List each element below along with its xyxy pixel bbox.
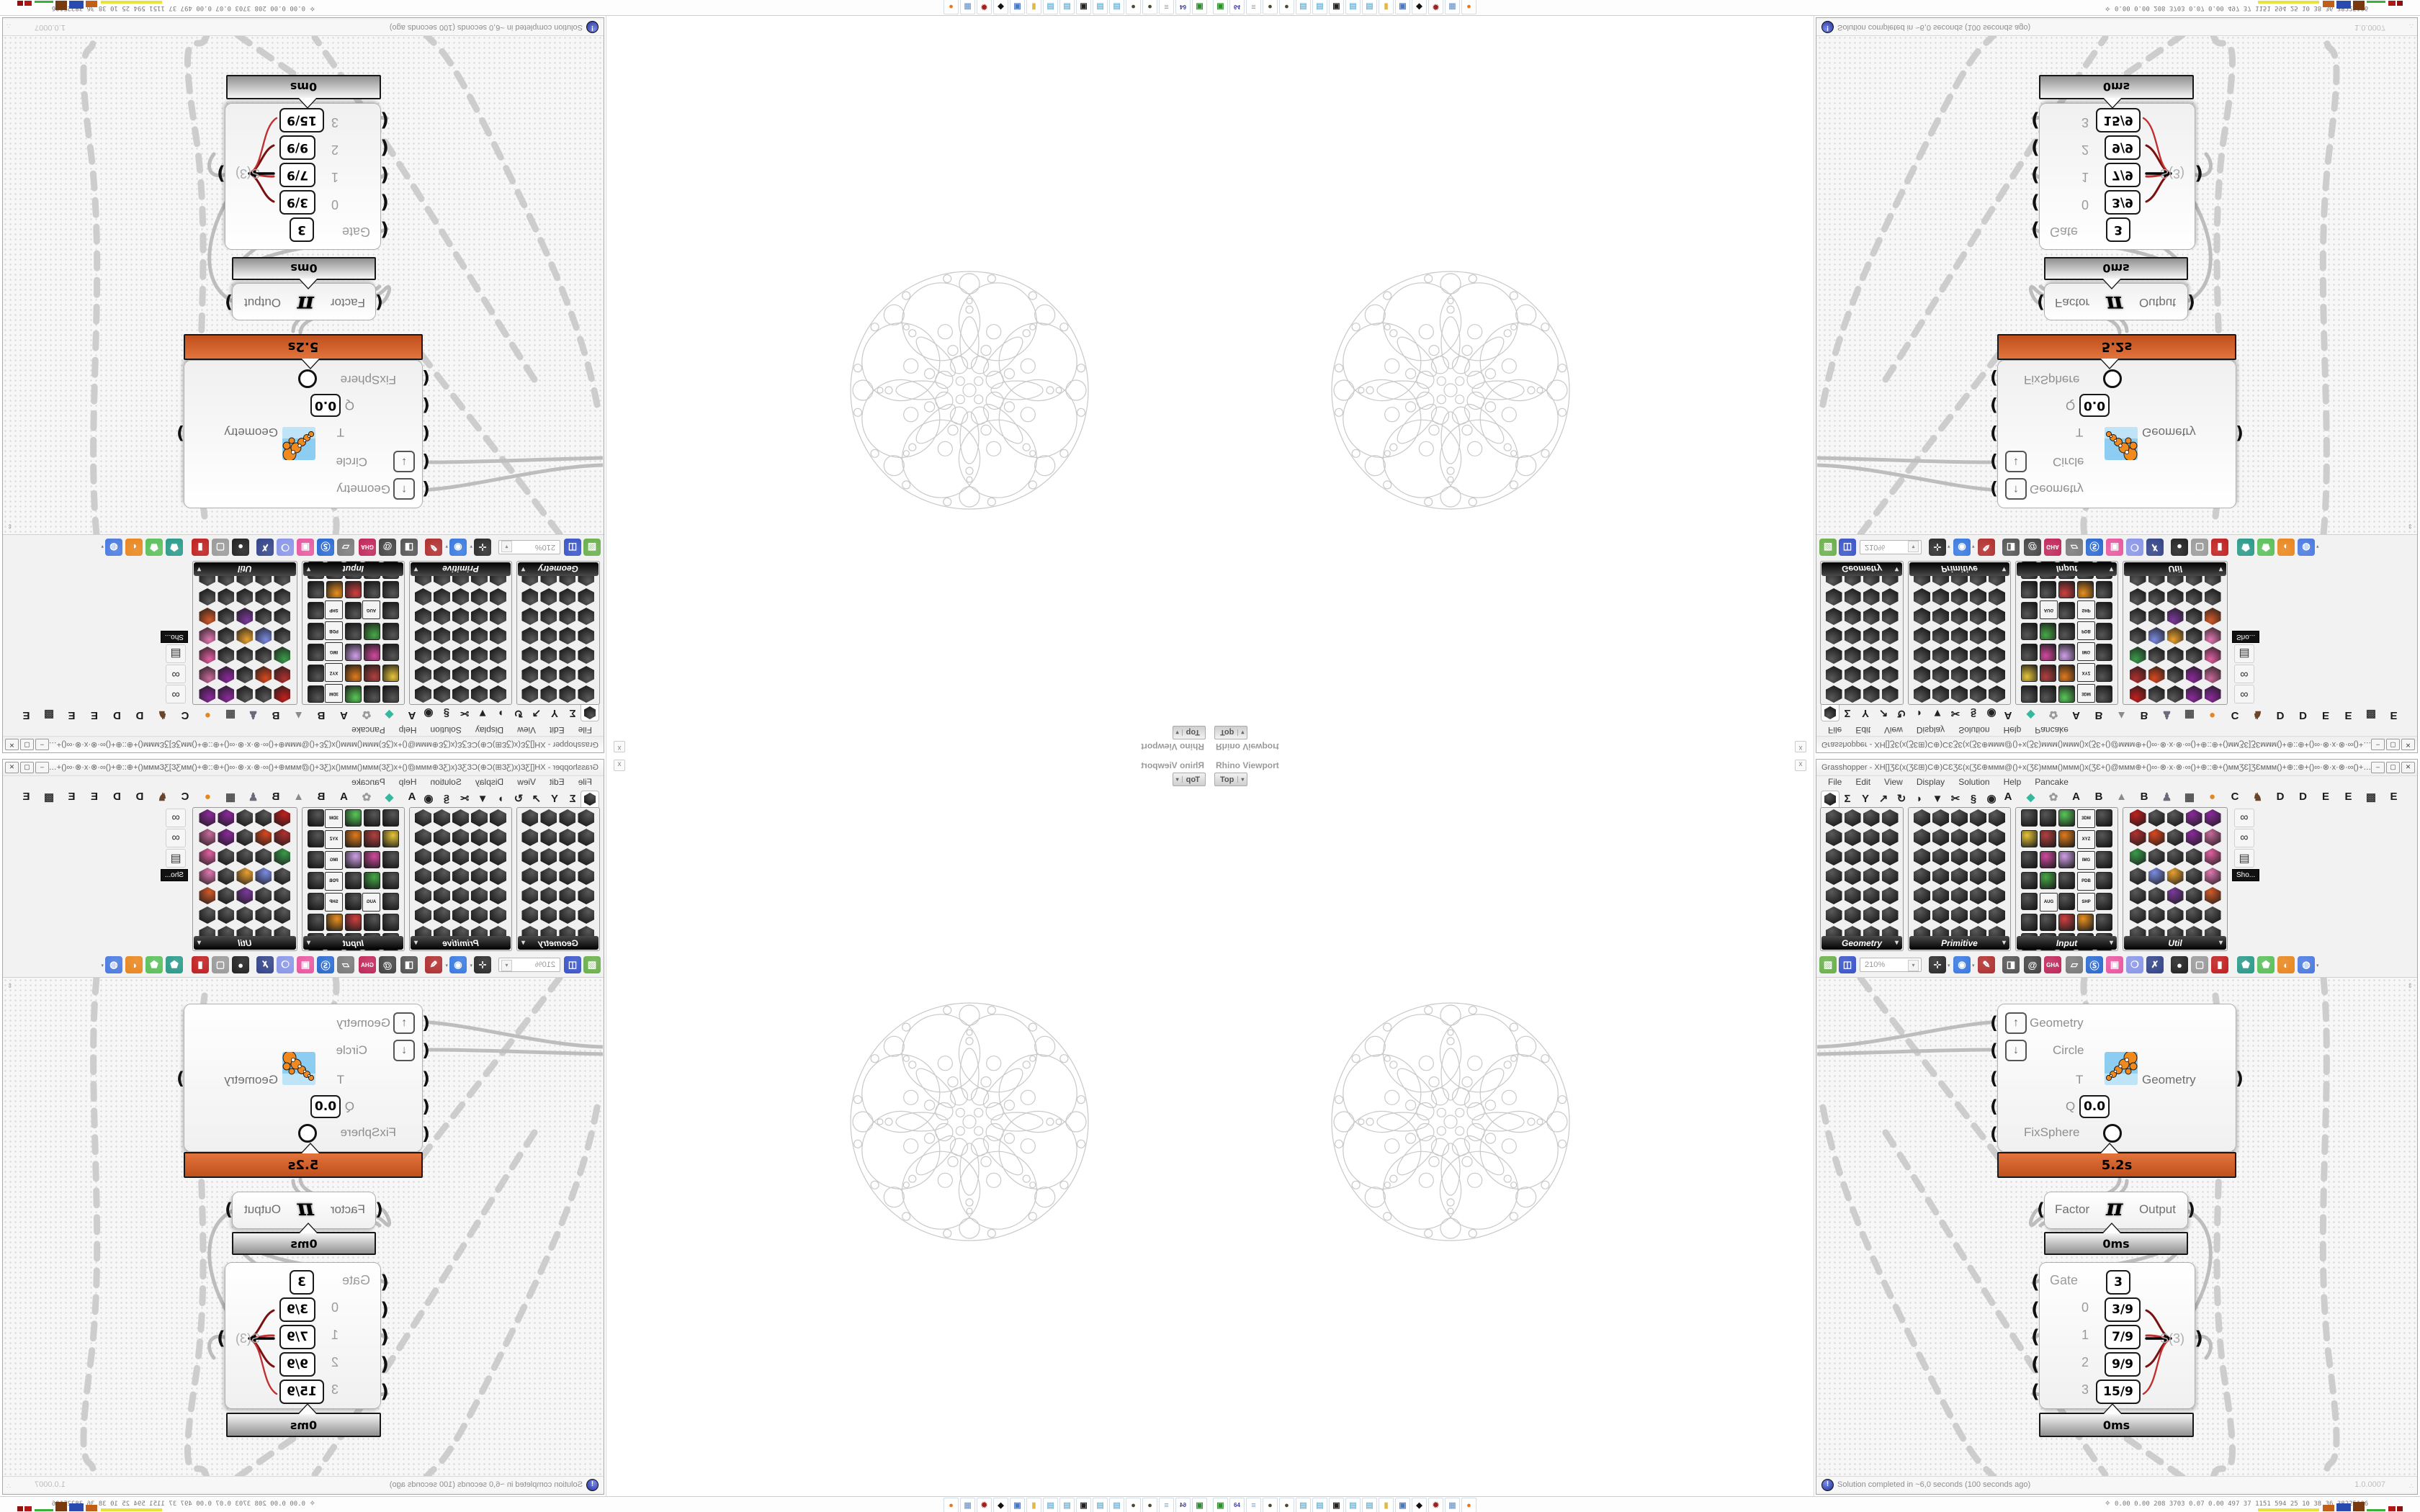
component-icon[interactable] (2130, 809, 2146, 827)
board-icon[interactable]: ▤ (166, 849, 186, 868)
chevron-down-icon[interactable]: ▾ (307, 939, 310, 947)
app-folder-icon[interactable]: ▮ (1026, 0, 1041, 14)
preview-eye-icon[interactable]: ◉ (1953, 956, 1971, 973)
component-icon[interactable] (2040, 685, 2056, 703)
component-icon[interactable] (2021, 893, 2038, 910)
component-icon[interactable] (1914, 685, 1930, 703)
app-note1-icon[interactable]: ▤ (1109, 1498, 1124, 1512)
package-icon[interactable]: ▣ (2106, 539, 2123, 556)
component-icon[interactable] (1882, 647, 1899, 664)
menu-item-display[interactable]: Display (1917, 725, 1945, 735)
component-icon[interactable] (1951, 647, 1968, 664)
chevron-down-icon[interactable]: ▾ (470, 544, 472, 549)
component-icon[interactable] (522, 685, 539, 703)
component-icon[interactable] (274, 666, 291, 683)
component-icon[interactable] (2096, 581, 2112, 598)
tab-sets[interactable]: Y (546, 706, 563, 721)
glasses-icon[interactable]: ∞ (166, 685, 186, 703)
component-icon[interactable] (345, 665, 362, 682)
menu-item-help[interactable]: Help (399, 725, 417, 735)
component-icon[interactable] (434, 829, 450, 846)
component-icon[interactable] (560, 588, 576, 606)
gate-value-box[interactable]: 7/9 (2105, 163, 2141, 187)
tab-curve[interactable]: ↻ (1893, 706, 1910, 721)
input-connector[interactable]: ( (2031, 1354, 2040, 1375)
component-icon[interactable] (452, 829, 469, 846)
tab-surface[interactable]: ◗ (492, 791, 509, 806)
component-icon[interactable] (434, 627, 450, 644)
finder-icon[interactable]: Ⓢ (2086, 539, 2103, 556)
glasses2-icon[interactable]: ∞ (166, 665, 186, 683)
app-orb1-icon[interactable]: ● (1263, 0, 1278, 14)
chevron-down-icon[interactable]: ▾ (197, 939, 201, 947)
component-icon[interactable] (2130, 647, 2146, 664)
component-icon[interactable] (1863, 647, 1880, 664)
component-icon[interactable] (308, 685, 324, 703)
component-icon[interactable] (1970, 647, 1986, 664)
component-icon[interactable] (1951, 906, 1968, 924)
component-icon[interactable] (452, 627, 469, 644)
component-icon[interactable] (308, 893, 324, 910)
component-icon[interactable] (2167, 588, 2184, 606)
wire-display-icon[interactable]: ✗ (2146, 956, 2164, 973)
component-icon[interactable]: IMG (325, 642, 343, 661)
arrow-down-icon[interactable]: ↓ (393, 451, 415, 472)
chevron-down-icon[interactable]: ▾ (307, 565, 310, 573)
gate-value-box[interactable]: 15/9 (2096, 1380, 2141, 1404)
app-bw-icon[interactable]: ◆ (993, 1498, 1008, 1512)
component-icon[interactable] (2186, 809, 2202, 827)
rhino-viewport[interactable]: Rhino Viewport Top ▾ x (606, 756, 1210, 1496)
component-icon[interactable] (1914, 868, 1930, 885)
component-icon[interactable] (256, 647, 272, 664)
menu-item-solution[interactable]: Solution (430, 725, 461, 735)
output-connector[interactable]: ) (2195, 1328, 2203, 1349)
plugin-tab[interactable]: ● (198, 706, 218, 721)
component-icon[interactable] (1826, 627, 1842, 644)
app-bw-icon[interactable]: ◆ (993, 0, 1008, 14)
gate-value-box[interactable]: 7/9 (2105, 1325, 2141, 1349)
tab-transform[interactable]: § (438, 791, 455, 806)
output-connector[interactable]: ) (2195, 163, 2203, 184)
component-icon[interactable] (2205, 829, 2221, 846)
component-icon[interactable] (541, 829, 557, 846)
component-icon[interactable] (200, 608, 216, 625)
plugin-tab[interactable]: A (334, 706, 354, 721)
chevron-down-icon[interactable]: ▾ (1237, 729, 1244, 736)
output-connector[interactable]: ) (217, 1328, 225, 1349)
component-icon[interactable] (2130, 887, 2146, 904)
component-icon[interactable]: 3DM (325, 684, 343, 703)
palette-footer-geometry[interactable]: Geometry▾ (518, 936, 599, 950)
grasshopper-titlebar[interactable]: Grasshopper - XH[]ƷƐ(x(ƷƐ⊞)C⊕)CƐƷƐ(x(ƷƐ⊕… (3, 736, 604, 752)
menu-item-display[interactable]: Display (475, 777, 503, 787)
plugin-tab[interactable]: B (2089, 706, 2109, 721)
component-icon[interactable] (345, 851, 362, 868)
chevron-down-icon[interactable]: ▾ (1908, 541, 1919, 552)
exposure-icon[interactable]: ◨ (400, 956, 418, 973)
bake-teal-icon[interactable]: ⬟ (166, 956, 183, 973)
cluster-red-icon[interactable]: ▮ (2211, 539, 2228, 556)
component-icon[interactable] (2167, 906, 2184, 924)
board-icon[interactable]: ▤ (166, 644, 186, 663)
input-connector[interactable]: ( (422, 1013, 430, 1033)
input-connector[interactable]: ( (1990, 1124, 1998, 1144)
palette-footer-util[interactable]: Util▾ (2124, 936, 2226, 950)
menu-item-file[interactable]: File (1828, 777, 1842, 787)
component-icon[interactable] (1989, 887, 2005, 904)
component-icon[interactable] (364, 872, 380, 889)
input-connector[interactable]: ( (2031, 219, 2040, 240)
gate-value-box[interactable]: 15/9 (2096, 108, 2141, 132)
gate-value-box[interactable]: 3/9 (279, 190, 315, 215)
tab-surface[interactable]: ◗ (1911, 706, 1928, 721)
component-icon[interactable] (2167, 848, 2184, 865)
plugin-tab[interactable]: ▲ (2112, 791, 2132, 806)
viewport-tab-top[interactable]: Top ▾ (1214, 726, 1247, 739)
grasshopper-canvas[interactable]: ( ( ( ( ( ) ↑ ↓ Geometry Circle T Q FixS… (1817, 35, 2417, 534)
tab-params[interactable] (581, 791, 599, 807)
output-connector[interactable]: ) (2187, 1200, 2195, 1220)
component-icon[interactable] (415, 809, 431, 827)
plugin-tab[interactable]: ✿ (2043, 706, 2063, 721)
bake-green-icon[interactable]: ⬟ (145, 956, 163, 973)
balloon-icon[interactable]: ❍ (277, 539, 294, 556)
component-icon[interactable] (1989, 647, 2005, 664)
chevron-down-icon[interactable]: ▾ (1972, 963, 1975, 968)
plugin-tab[interactable]: E (84, 791, 104, 806)
component-icon[interactable] (345, 623, 362, 640)
app-monitor-icon[interactable]: ▣ (1010, 0, 1025, 14)
component-icon[interactable] (308, 665, 324, 682)
palette-footer-primitive[interactable]: Primitive▾ (1909, 936, 2009, 950)
app-seal-icon[interactable]: ✹ (1428, 1498, 1443, 1512)
preview-eye-icon[interactable]: ◉ (449, 539, 467, 556)
arrow-up-icon[interactable]: ↑ (393, 1012, 415, 1034)
viewport-tab-top[interactable]: Top ▾ (1173, 773, 1206, 786)
component-icon[interactable] (578, 647, 595, 664)
component-icon[interactable] (200, 685, 216, 703)
tab-maths[interactable]: Σ (1839, 791, 1856, 806)
component-icon[interactable] (560, 608, 576, 625)
app-firefox-icon[interactable]: ● (944, 1498, 959, 1512)
component-icon[interactable] (1863, 608, 1880, 625)
plugin-tab[interactable]: ▦ (2179, 791, 2200, 806)
plugin-tab[interactable]: A (1998, 706, 2018, 721)
chevron-down-icon[interactable]: ▾ (1176, 729, 1183, 736)
component-icon[interactable] (1882, 666, 1899, 683)
pi-component[interactable]: ( ) Factor π Output (2044, 283, 2188, 320)
input-connector[interactable]: ( (422, 1068, 430, 1089)
chevron-down-icon[interactable]: ▾ (1972, 544, 1975, 549)
component-icon[interactable] (237, 906, 254, 924)
minimize-button[interactable]: – (35, 739, 49, 750)
component-icon[interactable] (471, 685, 488, 703)
component-icon[interactable] (274, 906, 291, 924)
component-icon[interactable] (578, 588, 595, 606)
plugin-tab[interactable]: E (2339, 706, 2359, 721)
named-view-icon[interactable]: ▱ (337, 956, 354, 973)
component-icon[interactable] (364, 581, 380, 598)
component-icon[interactable] (1932, 666, 1949, 683)
component-icon[interactable] (364, 644, 380, 661)
component-icon[interactable] (1863, 848, 1880, 865)
component-icon[interactable] (560, 647, 576, 664)
component-icon[interactable] (578, 685, 595, 703)
component-icon[interactable] (522, 608, 539, 625)
chevron-down-icon[interactable]: ▾ (2002, 565, 2006, 573)
gate-value-box[interactable]: 15/9 (279, 108, 324, 132)
chevron-down-icon[interactable]: ▾ (1176, 776, 1183, 783)
component-icon[interactable] (382, 872, 399, 889)
preview-blue-icon[interactable]: ◍ (2298, 956, 2315, 973)
tab-transform[interactable]: § (1965, 791, 1982, 806)
menu-item-display[interactable]: Display (475, 725, 503, 735)
component-icon[interactable] (274, 848, 291, 865)
component-icon[interactable] (1882, 868, 1899, 885)
tab-sets[interactable]: Y (546, 791, 563, 806)
component-icon[interactable] (471, 848, 488, 865)
input-connector[interactable]: ( (375, 1200, 383, 1220)
app-firefox-icon[interactable]: ● (1461, 1498, 1476, 1512)
menu-item-pancake[interactable]: Pancake (351, 777, 385, 787)
component-icon[interactable] (274, 608, 291, 625)
component-icon[interactable] (1970, 887, 1986, 904)
wire-display-icon[interactable]: ✗ (256, 956, 274, 973)
component-icon[interactable] (2186, 647, 2202, 664)
chevron-down-icon[interactable]: ▾ (1948, 544, 1950, 549)
mail-icon[interactable]: @ (379, 956, 396, 973)
app-floppy-icon[interactable]: 64 (1229, 1498, 1245, 1512)
component-icon[interactable] (1914, 829, 1930, 846)
save-file-icon[interactable]: ◫ (1839, 539, 1856, 556)
input-connector[interactable]: ( (1990, 1040, 1998, 1061)
component-icon[interactable] (1989, 627, 2005, 644)
wire-display-icon[interactable]: ✗ (256, 539, 274, 556)
app-note2-icon[interactable]: ▤ (1312, 1498, 1327, 1512)
component-icon[interactable] (2021, 685, 2038, 703)
chevron-down-icon[interactable]: ▾ (101, 544, 104, 549)
cluster-red-icon[interactable]: ▮ (192, 539, 209, 556)
chevron-down-icon[interactable]: ▾ (2316, 963, 2319, 968)
grasshopper-canvas[interactable]: ( ( ( ( ( ) ↑ ↓ Geometry Circle T Q FixS… (3, 35, 603, 534)
glasses2-icon[interactable]: ∞ (2234, 665, 2254, 683)
component-icon[interactable] (237, 647, 254, 664)
component-icon[interactable] (1970, 848, 1986, 865)
app-folder-icon[interactable]: ▮ (1379, 0, 1394, 14)
component-icon[interactable] (2186, 608, 2202, 625)
component-icon[interactable] (364, 851, 380, 868)
tab-maths[interactable]: Σ (1839, 706, 1856, 721)
component-icon[interactable] (364, 623, 380, 640)
chevron-down-icon[interactable]: ▾ (1237, 776, 1244, 783)
component-icon[interactable] (2021, 644, 2038, 661)
app-note1-icon[interactable]: ▤ (1296, 0, 1311, 14)
zoom-level-combobox[interactable]: 210% ▾ (498, 540, 560, 554)
plugin-tab[interactable]: D (2293, 706, 2313, 721)
component-icon[interactable] (490, 829, 506, 846)
plugin-tab[interactable]: ◆ (2021, 791, 2041, 806)
component-icon[interactable] (434, 887, 450, 904)
component-icon[interactable] (2096, 602, 2112, 619)
fixsphere-component[interactable]: ( ( ( ( ( ) ↑ ↓ Geometry Circle T Q FixS… (1997, 1004, 2236, 1152)
component-icon[interactable] (434, 608, 450, 625)
component-icon[interactable] (434, 647, 450, 664)
component-icon[interactable] (560, 906, 576, 924)
gha-icon[interactable]: GHA (359, 539, 376, 556)
app-device-icon[interactable]: ▣ (1213, 0, 1228, 14)
component-icon[interactable] (200, 829, 216, 846)
component-icon[interactable] (2040, 644, 2056, 661)
component-icon[interactable] (1914, 809, 1930, 827)
component-icon[interactable] (2058, 851, 2075, 868)
component-icon[interactable] (256, 906, 272, 924)
component-icon[interactable] (2130, 627, 2146, 644)
gha-icon[interactable]: GHA (2044, 956, 2061, 973)
q-value-box[interactable]: 0.0 (310, 394, 341, 417)
component-icon[interactable] (2148, 608, 2165, 625)
component-icon[interactable] (345, 893, 362, 910)
component-icon[interactable] (560, 829, 576, 846)
component-icon[interactable] (2186, 887, 2202, 904)
menu-item-view[interactable]: View (1884, 725, 1903, 735)
component-icon[interactable] (541, 906, 557, 924)
app-scroll-icon[interactable]: ≡ (1159, 0, 1174, 14)
plugin-tab[interactable]: ♞ (153, 706, 173, 721)
app-note3-icon[interactable]: ▤ (1059, 1498, 1075, 1512)
tab-mesh[interactable]: ▼ (1929, 706, 1946, 721)
component-icon[interactable] (1951, 848, 1968, 865)
app-note4-icon[interactable]: ▤ (1362, 0, 1377, 14)
component-icon[interactable] (1914, 848, 1930, 865)
component-icon[interactable] (578, 887, 595, 904)
component-icon[interactable] (256, 666, 272, 683)
gate-value-box[interactable]: 3 (290, 1270, 314, 1295)
sketch-pen-icon[interactable]: ✎ (1978, 956, 1995, 973)
component-icon[interactable] (1932, 608, 1949, 625)
component-icon[interactable] (2130, 588, 2146, 606)
component-icon[interactable] (541, 627, 557, 644)
maximize-button[interactable]: ▢ (2386, 762, 2400, 773)
component-icon[interactable] (578, 848, 595, 865)
component-icon[interactable] (1914, 666, 1930, 683)
plugin-tab[interactable]: ▲ (289, 706, 309, 721)
component-icon[interactable] (1970, 809, 1986, 827)
glasses2-icon[interactable]: ∞ (2234, 829, 2254, 847)
close-button[interactable]: ✕ (5, 762, 19, 773)
q-value-box[interactable]: 0.0 (2079, 394, 2110, 417)
grasshopper-titlebar[interactable]: Grasshopper - XH[]ƷƐ(x(ƷƐ⊞)C⊕)CƐƷƐ(x(ƷƐ⊕… (1816, 736, 2417, 752)
component-icon[interactable] (2148, 647, 2165, 664)
plugin-tab[interactable]: A (402, 791, 422, 806)
component-icon[interactable] (490, 608, 506, 625)
component-icon[interactable] (2058, 809, 2075, 827)
component-icon[interactable] (1863, 829, 1880, 846)
app-terminal-icon[interactable]: ▣ (1076, 0, 1091, 14)
component-icon[interactable] (218, 647, 235, 664)
input-connector[interactable]: ( (1990, 1097, 1998, 1117)
component-icon[interactable] (200, 887, 216, 904)
resize-grip[interactable]: ∴ (6, 1482, 11, 1490)
component-icon[interactable] (2148, 829, 2165, 846)
board-icon[interactable]: ▤ (2234, 644, 2254, 663)
close-button[interactable]: ✕ (2401, 762, 2415, 773)
component-icon[interactable] (1826, 666, 1842, 683)
grasshopper-canvas[interactable]: ( ( ( ( ( ) ↑ ↓ Geometry Circle T Q FixS… (3, 978, 603, 1477)
tab-transform[interactable]: § (1965, 706, 1982, 721)
menu-item-view[interactable]: View (1884, 777, 1903, 787)
component-icon[interactable] (522, 627, 539, 644)
canvas-scroll-arrows[interactable]: ⇕ (2407, 522, 2413, 530)
component-icon[interactable] (541, 588, 557, 606)
component-icon[interactable] (1845, 829, 1861, 846)
component-icon[interactable] (237, 627, 254, 644)
component-icon[interactable] (522, 666, 539, 683)
component-icon[interactable] (452, 887, 469, 904)
component-icon[interactable] (471, 588, 488, 606)
component-icon[interactable] (415, 608, 431, 625)
menu-item-pancake[interactable]: Pancake (2035, 777, 2069, 787)
component-icon[interactable]: SHP (325, 893, 343, 912)
component-icon[interactable] (2058, 830, 2075, 847)
tab-vector[interactable]: ↗ (528, 706, 545, 721)
cluster-open-icon[interactable]: ▢ (2191, 956, 2208, 973)
tab-surface[interactable]: ◗ (1911, 791, 1928, 806)
input-connector[interactable]: ( (2031, 192, 2040, 213)
balloon-icon[interactable]: ❍ (277, 956, 294, 973)
fixsphere-toggle[interactable] (298, 369, 317, 388)
component-icon[interactable] (2096, 872, 2112, 889)
component-icon[interactable] (2167, 887, 2184, 904)
menu-item-solution[interactable]: Solution (1958, 725, 1989, 735)
app-folder-icon[interactable]: ▮ (1026, 1498, 1041, 1512)
gha-icon[interactable]: GHA (2044, 539, 2061, 556)
component-icon[interactable] (1932, 685, 1949, 703)
component-icon[interactable] (2186, 685, 2202, 703)
component-icon[interactable] (2130, 608, 2146, 625)
component-icon[interactable] (1932, 829, 1949, 846)
plugin-tab[interactable]: ◆ (2021, 706, 2041, 721)
component-icon[interactable] (200, 809, 216, 827)
open-file-icon[interactable]: ▨ (1819, 956, 1837, 973)
component-icon[interactable] (2186, 627, 2202, 644)
plugin-tab[interactable]: E (17, 706, 37, 721)
menu-item-view[interactable]: View (517, 777, 536, 787)
component-icon[interactable] (1989, 809, 2005, 827)
tab-intersect[interactable]: ✂ (456, 791, 473, 806)
component-icon[interactable] (2040, 809, 2056, 827)
app-calc-icon[interactable]: ▦ (1445, 0, 1460, 14)
component-icon[interactable] (1970, 666, 1986, 683)
component-icon[interactable]: 3DM (2077, 809, 2095, 828)
component-icon[interactable] (2096, 851, 2112, 868)
component-icon[interactable] (218, 829, 235, 846)
app-seal-icon[interactable]: ✹ (1428, 0, 1443, 14)
component-icon[interactable] (560, 848, 576, 865)
tab-mesh[interactable]: ▼ (1929, 791, 1946, 806)
package-icon[interactable]: ▣ (297, 956, 314, 973)
component-icon[interactable] (1951, 868, 1968, 885)
input-connector[interactable]: ( (380, 164, 389, 186)
input-connector[interactable]: ( (422, 395, 430, 415)
grasshopper-window[interactable]: Grasshopper - XH[]ƷƐ(x(ƷƐ⊞)C⊕)CƐƷƐ(x(ƷƐ⊕… (2, 759, 604, 1495)
component-icon[interactable] (2040, 623, 2056, 640)
component-icon[interactable] (434, 685, 450, 703)
component-icon[interactable] (1845, 627, 1861, 644)
named-view-icon[interactable]: ▱ (337, 539, 354, 556)
plugin-tab[interactable]: ♟ (2157, 791, 2177, 806)
pi-component[interactable]: ( ) Factor π Output (232, 283, 376, 320)
